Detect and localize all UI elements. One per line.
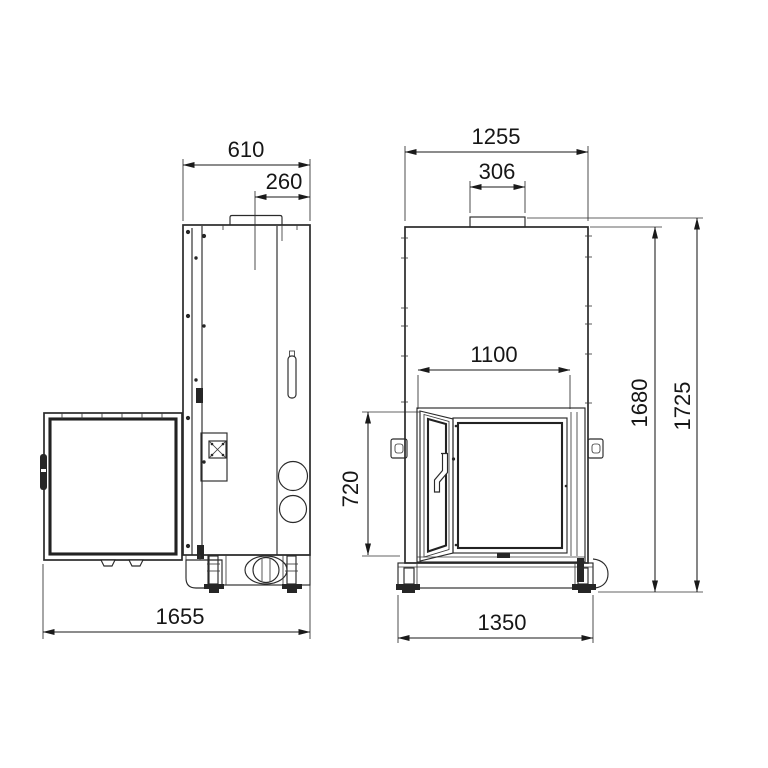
- front-view: [391, 217, 608, 593]
- side-open-door: [40, 413, 182, 566]
- front-caster: [593, 559, 608, 588]
- side-width-top-label: 610: [228, 137, 265, 162]
- dim-front-height-total: 1725: [527, 218, 703, 592]
- side-view: [40, 216, 310, 594]
- front-body: [405, 227, 588, 563]
- front-flue-width-label: 306: [479, 159, 516, 184]
- dim-front-flue-width: 306: [470, 159, 525, 213]
- front-base: [396, 558, 608, 593]
- side-flue-offset-label: 260: [266, 169, 303, 194]
- side-latch-block: [196, 388, 203, 403]
- drawing-canvas: 610 260 1655: [0, 0, 768, 768]
- front-opening-width-label: 1100: [470, 342, 517, 367]
- dim-front-opening-width: 1100: [418, 342, 570, 409]
- side-connector-lower: [280, 496, 307, 523]
- side-connector-upper: [279, 462, 308, 491]
- fireplace-dimension-drawing: 610 260 1655: [0, 0, 768, 768]
- side-air-duct: [245, 556, 287, 584]
- front-base-width-label: 1350: [478, 610, 527, 635]
- dim-front-opening-height: 720: [338, 412, 420, 556]
- front-opening-height-label: 720: [338, 471, 363, 508]
- side-base: [186, 555, 310, 588]
- side-flue-collar: [230, 216, 282, 226]
- front-width-top-label: 1255: [472, 124, 521, 149]
- front-edge-ticks: [401, 236, 592, 403]
- side-slot: [288, 356, 296, 398]
- side-depth-total-label: 1655: [156, 604, 205, 629]
- front-firebox: [417, 408, 585, 562]
- front-height-total-label: 1725: [670, 382, 695, 431]
- front-door-glass: [458, 423, 562, 548]
- front-height-body-label: 1680: [627, 379, 652, 428]
- front-flue-collar: [470, 217, 525, 227]
- side-hinge-bracket: [201, 433, 227, 481]
- side-feet: [204, 556, 302, 593]
- front-door-ajar: [420, 411, 455, 561]
- dim-front-base-width: 1350: [398, 595, 593, 643]
